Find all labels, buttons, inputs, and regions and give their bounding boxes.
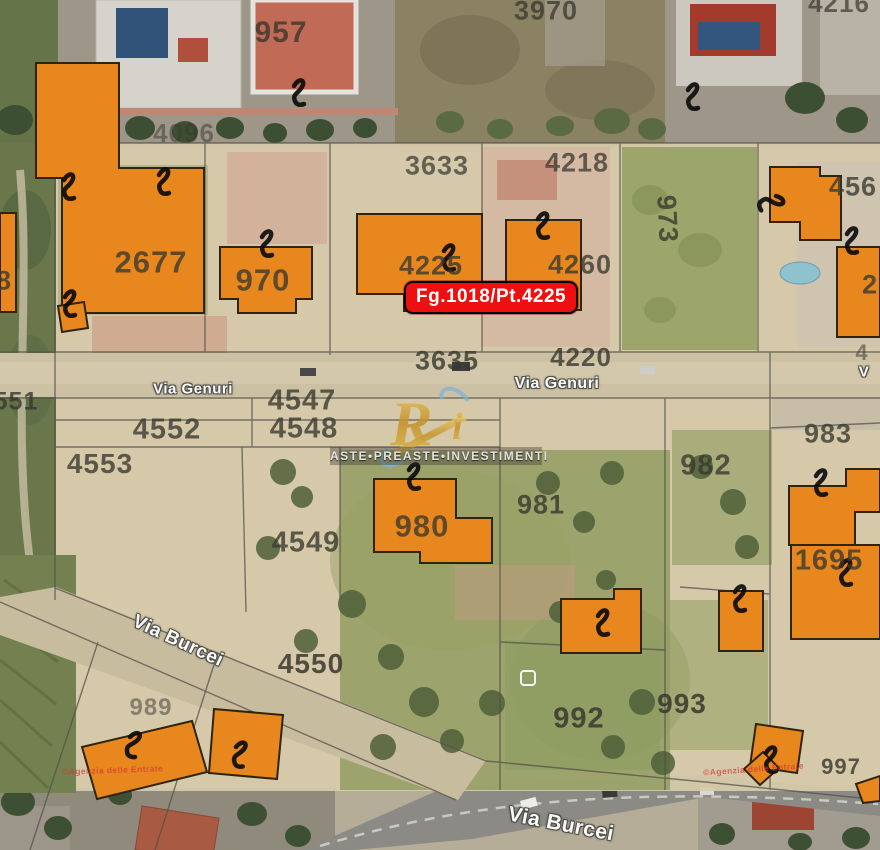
cadastral-satellite-map[interactable]: R i ASTE•PREASTE•INVESTIMENTI Fg.1018/Pt…	[0, 0, 880, 850]
highlighted-parcel-label[interactable]: Fg.1018/Pt.4225	[404, 281, 578, 314]
map-artwork	[0, 0, 880, 850]
swimming-pool	[780, 262, 820, 284]
